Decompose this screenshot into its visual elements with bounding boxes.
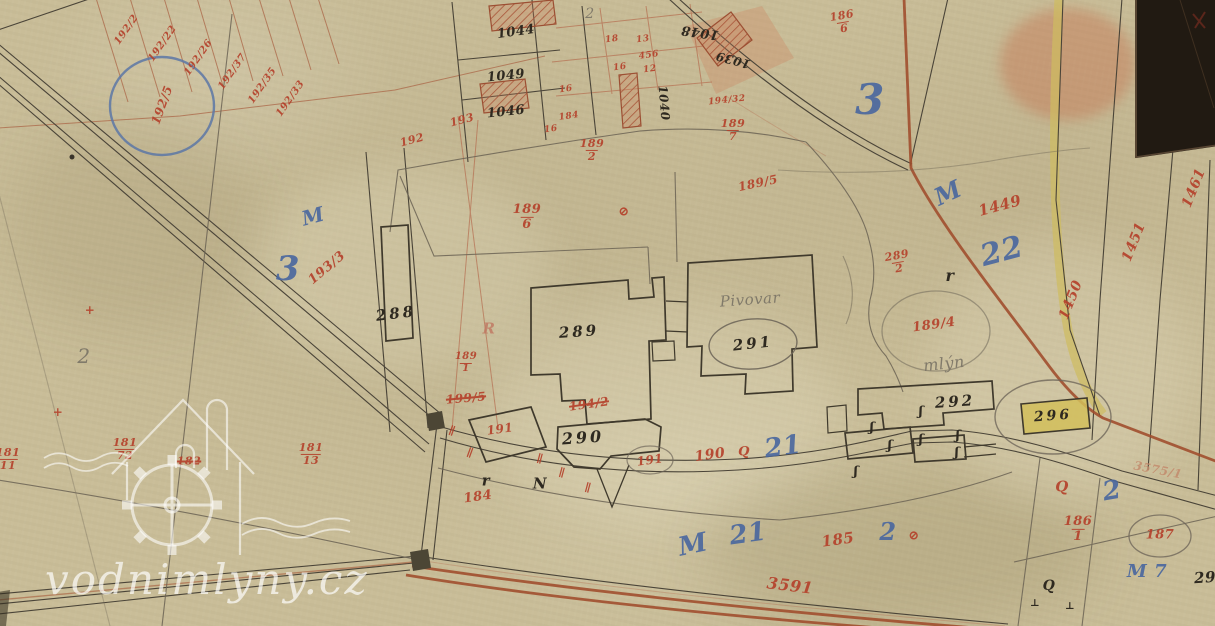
watermark-waves-icon [44, 453, 350, 538]
watermark-waterwheel-icon [122, 455, 222, 555]
cadastral-map-canvas: 192/2192/22192/26192/37192/35192/33192/5… [0, 0, 1215, 626]
watermark-text: vodnimlyny.cz [45, 555, 369, 604]
watermark: vodnimlyny.cz [0, 0, 1215, 626]
watermark-house-roof-icon [112, 400, 254, 474]
